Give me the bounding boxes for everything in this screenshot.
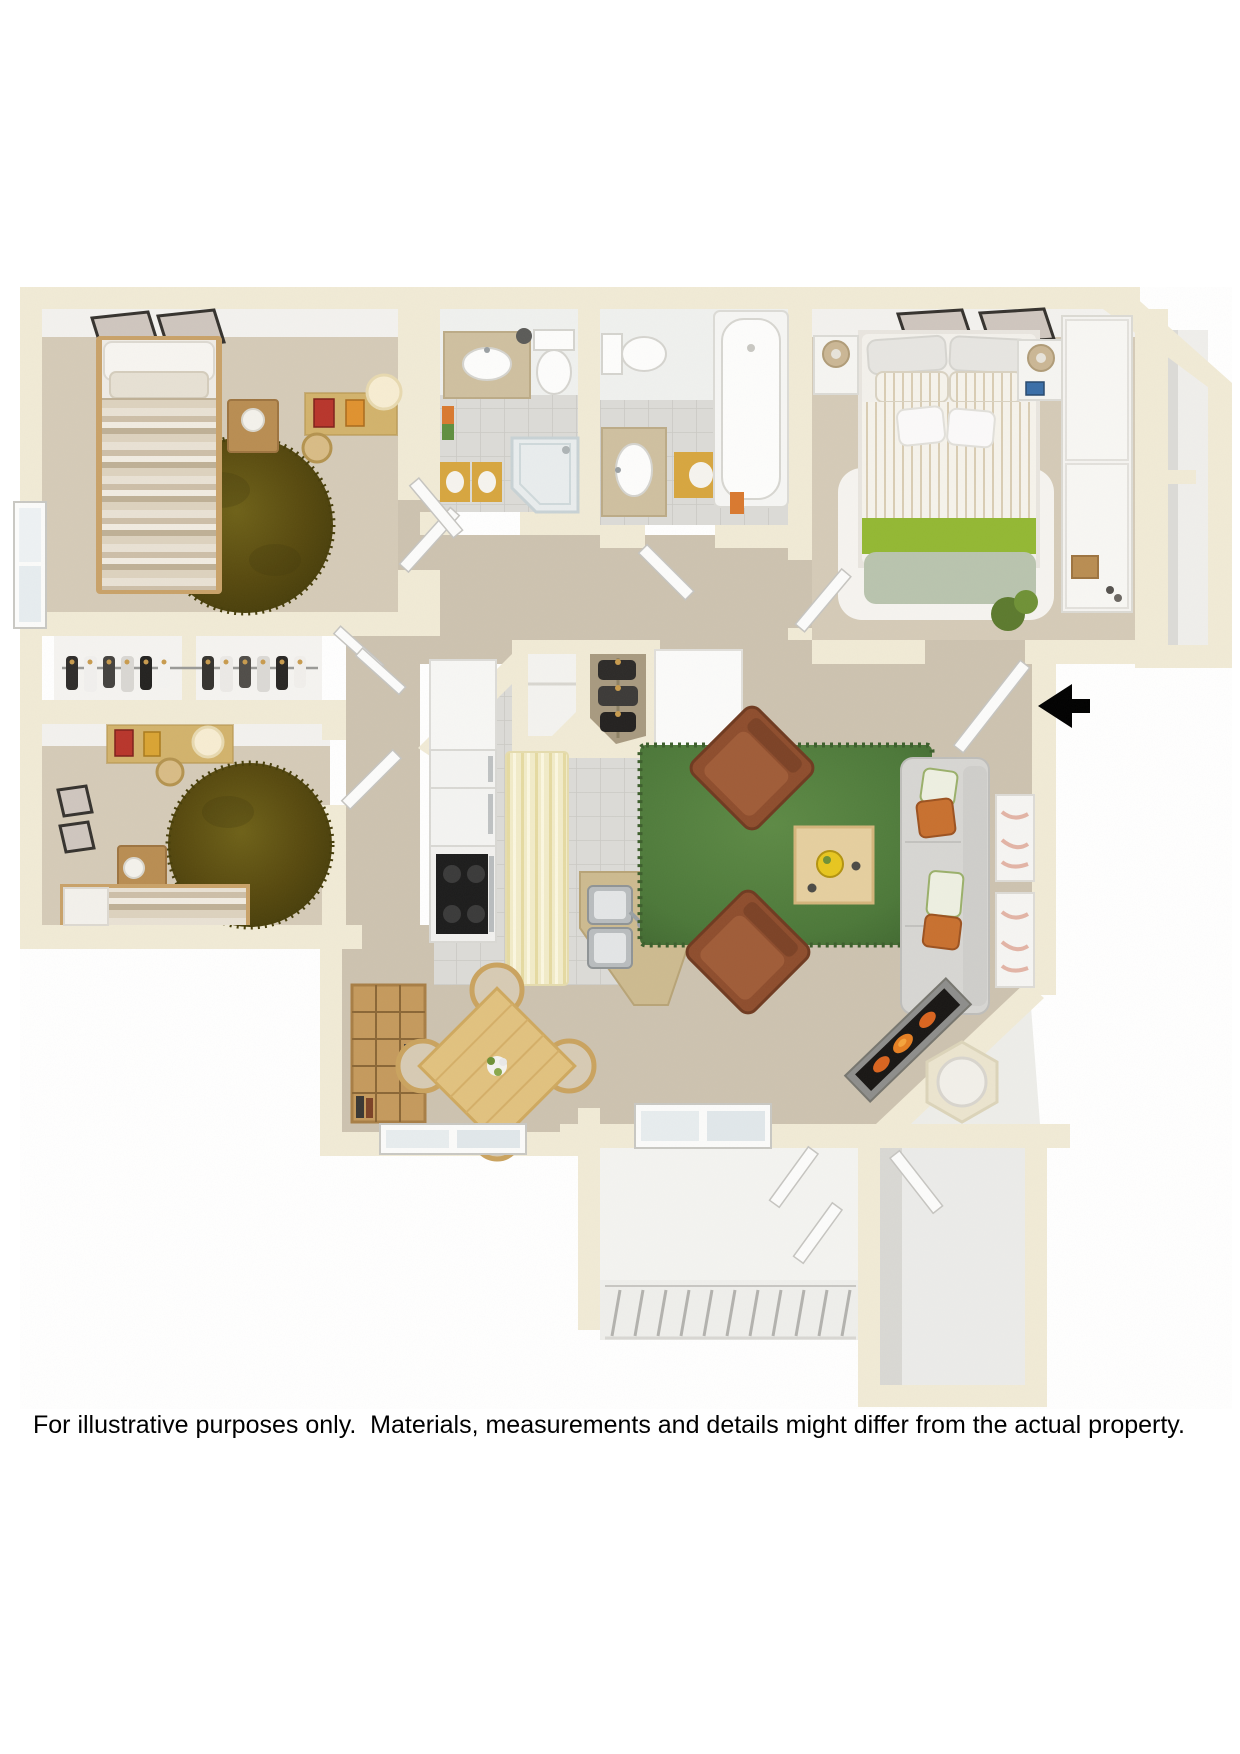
wall-master-bottom-a [812, 640, 925, 664]
window [14, 502, 46, 628]
wall-chase-right [1208, 383, 1232, 660]
wall-bedroom2-east-b [398, 570, 440, 612]
wall-dining-left [320, 925, 342, 1156]
paper-lamp-icon [367, 375, 401, 409]
wall-bath-divider [578, 287, 600, 535]
lamp-icon [242, 409, 264, 431]
photo-icon [1026, 382, 1044, 395]
towel-icon [730, 492, 744, 514]
wall-bedroom2-east-a [398, 287, 440, 500]
green-throw [862, 518, 1036, 554]
faucet-icon [615, 467, 621, 473]
sink-icon [616, 444, 652, 496]
fridge-handle [488, 756, 493, 782]
closet-door-panel [1066, 320, 1128, 460]
counter-cabinet [430, 660, 496, 752]
faucet-icon [484, 347, 490, 353]
book-icon [144, 732, 160, 756]
wall-master-west-b [788, 628, 812, 640]
wall-patio-left [578, 1108, 600, 1330]
basket-icon [1072, 556, 1098, 578]
water-heater-icon [938, 1058, 986, 1106]
wall-bath1-bottom-b [520, 512, 600, 535]
toilet [602, 334, 666, 374]
orange-pillow [916, 798, 956, 838]
bowl-icon [817, 851, 843, 877]
refrigerator [430, 750, 496, 846]
cooktop [436, 854, 488, 934]
sofa [901, 758, 989, 1014]
accent-pillow [896, 406, 946, 447]
book-icon [314, 399, 334, 427]
shower-drain-icon [562, 446, 570, 454]
storage-room-shadow [880, 1148, 902, 1385]
closet-door-panel [1066, 464, 1128, 608]
accent-pillow [947, 408, 996, 448]
fridge-handle [488, 794, 493, 834]
wall-chase-bottom [1135, 645, 1232, 668]
orange-pillow [922, 914, 962, 950]
sage-blanket [864, 552, 1036, 604]
wall-leftwing-bottom [20, 925, 362, 949]
wall-bath2-bottom-a [600, 525, 645, 548]
sliding-closet [1062, 316, 1132, 612]
nightstand [1018, 340, 1064, 400]
wall-master-west-a [788, 548, 812, 560]
toilet-bowl-icon [622, 337, 666, 371]
sofa-back [963, 766, 987, 1006]
pillow [64, 888, 108, 925]
towel-icon [442, 406, 454, 424]
nightstand [814, 336, 858, 394]
wall-closet-bottom [42, 700, 346, 724]
runner-rug [506, 752, 568, 985]
oven-handle [489, 856, 494, 932]
pillow [949, 336, 1029, 374]
bed [858, 330, 1040, 604]
entry-door-gap [925, 640, 1025, 664]
wall-bedroom2-bottom [42, 612, 440, 636]
floor-plan-page: For illustrative purposes only. Material… [0, 0, 1240, 1754]
wall-storage-right [1025, 1148, 1047, 1405]
wall-chase-notch [1168, 470, 1196, 484]
range-stove [430, 846, 496, 942]
toilet-bowl-icon [537, 350, 571, 394]
patio-floor [600, 1148, 858, 1280]
bathtub [714, 311, 788, 507]
striped-duvet [102, 398, 216, 590]
coats [598, 659, 638, 732]
nightstand [228, 400, 278, 452]
pillow [867, 335, 947, 374]
bed [60, 884, 250, 925]
pillow [110, 372, 208, 398]
window [380, 1124, 526, 1154]
coffee-table [795, 827, 873, 903]
toilet [534, 330, 574, 394]
striped-pillow [950, 372, 1022, 402]
book-icon [115, 730, 133, 756]
towel-icon [442, 424, 454, 440]
lamp-icon [124, 858, 144, 878]
master-bedroom [814, 309, 1132, 631]
wall-master-chase [1135, 309, 1168, 660]
wall-bedroom3-east-a [322, 724, 346, 740]
vanity [444, 332, 530, 398]
leaf-pillow [926, 871, 964, 918]
book-icon [346, 400, 364, 426]
bed [96, 336, 222, 594]
chase-shadow [1168, 330, 1178, 645]
wall-storage-bottom [858, 1385, 1047, 1407]
wall-frame-icon [60, 822, 94, 852]
tub-drain-icon [747, 344, 755, 352]
paper-lamp-icon [193, 727, 223, 757]
disclaimer-caption: For illustrative purposes only. Material… [33, 1410, 1223, 1441]
flower-vase-icon [487, 1056, 507, 1076]
striped-pillow [876, 372, 948, 402]
wall-frame-icon [58, 786, 92, 816]
stool-icon [303, 434, 331, 462]
vanity [602, 428, 666, 516]
wall-patio-right [858, 1148, 880, 1405]
trash-can-icon [516, 328, 532, 344]
wall-bath2-master [788, 287, 812, 548]
window [635, 1104, 771, 1148]
floor-plan-graphic [0, 0, 1240, 1754]
stool-icon [157, 759, 183, 785]
